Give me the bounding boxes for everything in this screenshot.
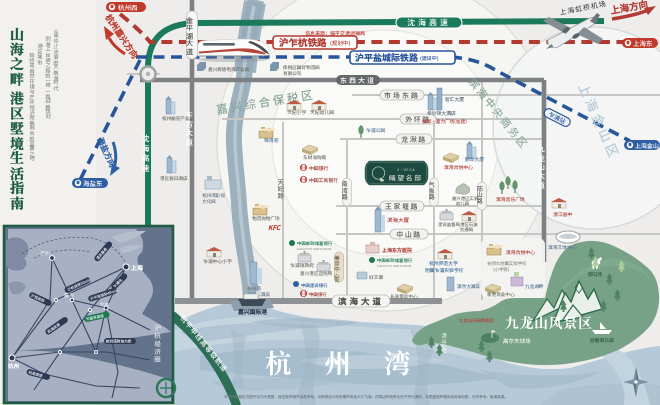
svg-text:CHINA POST SAVINGS BANK: CHINA POST SAVINGS BANK <box>377 264 412 268</box>
svg-text:(小学部): (小学部) <box>493 266 509 273</box>
svg-text:杭州湾跨海大桥: 杭州湾跨海大桥 <box>105 339 132 345</box>
svg-text:中国邮政储蓄银行: 中国邮政储蓄银行 <box>377 257 413 264</box>
svg-text:东财海购城: 东财海购城 <box>303 154 326 161</box>
svg-text:金平湖大道: 金平湖大道 <box>184 16 194 56</box>
svg-text:中国建设银行: 中国建设银行 <box>301 282 328 289</box>
svg-text:好文章: 好文章 <box>368 274 384 281</box>
svg-text:杭州湾影视: 杭州湾影视 <box>202 192 225 199</box>
svg-text:滨海合悦中心: 滨海合悦中心 <box>444 164 473 171</box>
svg-text:希尔顿大酒店: 希尔顿大酒店 <box>426 110 456 117</box>
svg-text:海盐东: 海盐东 <box>83 178 103 188</box>
svg-text:CHINA POST SAVINGS BANK: CHINA POST SAVINGS BANK <box>297 247 332 251</box>
svg-text:天妃路: 天妃路 <box>276 178 286 200</box>
svg-text:附属乍浦实验学校: 附属乍浦实验学校 <box>425 267 464 274</box>
svg-text:乍浦中心小学: 乍浦中心小学 <box>203 258 232 265</box>
svg-text:市场东路: 市场东路 <box>384 91 420 101</box>
svg-text:始终是自然环境与产业经济完美融合的宜居之地: 始终是自然环境与产业经济完美融合的宜居之地 <box>28 52 35 161</box>
svg-text:乍浦公园: 乍浦公园 <box>366 127 385 134</box>
svg-text:山海之畔 港区墅境生活指南: 山海之畔 港区墅境生活指南 <box>7 27 27 211</box>
svg-text:气象路: 气象路 <box>427 181 436 200</box>
svg-text:浦京大酒店: 浦京大酒店 <box>457 283 480 290</box>
svg-text:乍浦: 乍浦 <box>99 301 109 308</box>
svg-text:滨海文体中心: 滨海文体中心 <box>548 244 577 251</box>
svg-text:沈海高速: 沈海高速 <box>140 134 151 174</box>
svg-text:长途客运中心: 长途客运中心 <box>390 293 418 300</box>
svg-text:到海上丝绸之路的一带一路战略规划: 到海上丝绸之路的一带一路战略规划 <box>44 36 51 119</box>
svg-text:天妃幼儿园: 天妃幼儿园 <box>309 109 334 116</box>
svg-text:杭州西: 杭州西 <box>118 2 138 12</box>
svg-text:杭州航空产业园: 杭州航空产业园 <box>162 115 195 122</box>
svg-text:苏州: 苏州 <box>40 250 50 257</box>
svg-text:有限公司: 有限公司 <box>282 70 302 77</box>
svg-text:文化园: 文化园 <box>201 198 216 205</box>
svg-text:中国银行: 中国银行 <box>309 291 327 298</box>
svg-text:九龙山乐园度假区: 九龙山乐园度假区 <box>459 317 495 324</box>
svg-text:杭师大附属实验学校: 杭师大附属实验学校 <box>487 260 527 267</box>
svg-text:交通局: 交通局 <box>460 226 474 233</box>
svg-text:杭州湾: 杭州湾 <box>247 285 261 292</box>
svg-text:滨海音乐广场: 滨海音乐广场 <box>496 196 525 203</box>
svg-text:嘉兴国际港: 嘉兴国际港 <box>237 307 267 316</box>
svg-text:中山路: 中山路 <box>396 230 422 240</box>
svg-text:保税区国际物流园: 保税区国际物流园 <box>282 64 320 71</box>
svg-text:游艇俱乐部: 游艇俱乐部 <box>589 337 614 344</box>
svg-text:幼儿园: 幼儿园 <box>455 200 470 207</box>
svg-text:建设监督局: 建设监督局 <box>437 221 461 228</box>
svg-text:乍浦镇政府: 乍浦镇政府 <box>290 262 314 269</box>
svg-text:天妃小学: 天妃小学 <box>286 109 306 116</box>
svg-text:物流购物广场: 物流购物广场 <box>252 215 280 222</box>
svg-text:上海东方医院: 上海东方医院 <box>381 247 412 254</box>
svg-text:滨海大道: 滨海大道 <box>338 296 384 308</box>
svg-text:南湾路: 南湾路 <box>340 181 349 200</box>
svg-text:王家堰路: 王家堰路 <box>385 202 419 212</box>
svg-text:九龙山风景区: 九龙山风景区 <box>505 312 593 332</box>
svg-text:本资料所载区位图片仅为示意图，旨在提供相关信息参考。实际规划: 本资料所载区位图片仅为示意图，旨在提供相关信息参考。实际规划以政府最终审批文件为… <box>223 394 508 400</box>
svg-text:晴望名邸: 晴望名邸 <box>389 173 423 183</box>
svg-text:中国邮政储蓄银行: 中国邮政储蓄银行 <box>297 240 333 247</box>
svg-text:杭州湾: 杭州湾 <box>265 342 444 381</box>
svg-text:御马场: 御马场 <box>587 271 603 278</box>
svg-text:上海: 上海 <box>130 263 143 272</box>
svg-text:新港商业中心: 新港商业中心 <box>487 291 515 298</box>
svg-text:高尔夫球场: 高尔夫球场 <box>503 337 531 345</box>
svg-text:沪乍杭铁路: 沪乍杭铁路 <box>278 35 327 49</box>
svg-text:沈海高速: 沈海高速 <box>407 18 451 29</box>
svg-text:沪杭经济圈: 沪杭经济圈 <box>153 324 163 364</box>
svg-text:智汇大厦: 智汇大厦 <box>445 96 464 103</box>
svg-text:从未停止逐浪的大航海时代: 从未停止逐浪的大航海时代 <box>52 28 59 91</box>
svg-text:东西大道: 东西大道 <box>339 76 376 86</box>
svg-text:九龙山大道: 九龙山大道 <box>536 145 547 190</box>
svg-text:锦海苑: 锦海苑 <box>264 137 279 144</box>
svg-text:九龙湖畔: 九龙湖畔 <box>524 283 544 290</box>
svg-text:嘉兴港区边防所: 嘉兴港区边防所 <box>299 270 333 277</box>
svg-text:中国工商银行: 中国工商银行 <box>309 177 338 184</box>
svg-text:中国银行: 中国银行 <box>309 165 328 172</box>
svg-text:杭州师范大学: 杭州师范大学 <box>429 260 458 267</box>
svg-text:嘉兴跨境电商产业园: 嘉兴跨境电商产业园 <box>207 66 250 73</box>
svg-text:杭州: 杭州 <box>7 362 20 370</box>
svg-text:(建设中): (建设中) <box>420 55 439 62</box>
svg-text:滨海合悦中心: 滨海合悦中心 <box>506 249 535 256</box>
svg-text:鹏华大厦: 鹏华大厦 <box>464 156 484 163</box>
svg-text:美食中心街: 美食中心街 <box>333 255 341 284</box>
svg-text:港区假日酒店: 港区假日酒店 <box>160 175 188 182</box>
svg-text:滨海大厦: 滨海大厦 <box>387 216 410 224</box>
svg-text:S·VEGA: S·VEGA <box>397 167 415 172</box>
svg-text:上海金山: 上海金山 <box>634 141 659 150</box>
svg-text:浙江省中: 浙江省中 <box>553 211 572 218</box>
svg-text:上海东: 上海东 <box>633 38 653 48</box>
svg-text:KFC: KFC <box>268 222 282 232</box>
svg-text:(规划中): (规划中) <box>330 39 350 47</box>
svg-text:龙湫路: 龙湫路 <box>401 135 427 145</box>
svg-text:沪平盐城际铁路: 沪平盐城际铁路 <box>354 51 419 64</box>
svg-text:港区城市: 港区城市 <box>36 44 43 65</box>
svg-text:福邸·富力广场(在建): 福邸·富力广场(在建) <box>422 118 467 125</box>
